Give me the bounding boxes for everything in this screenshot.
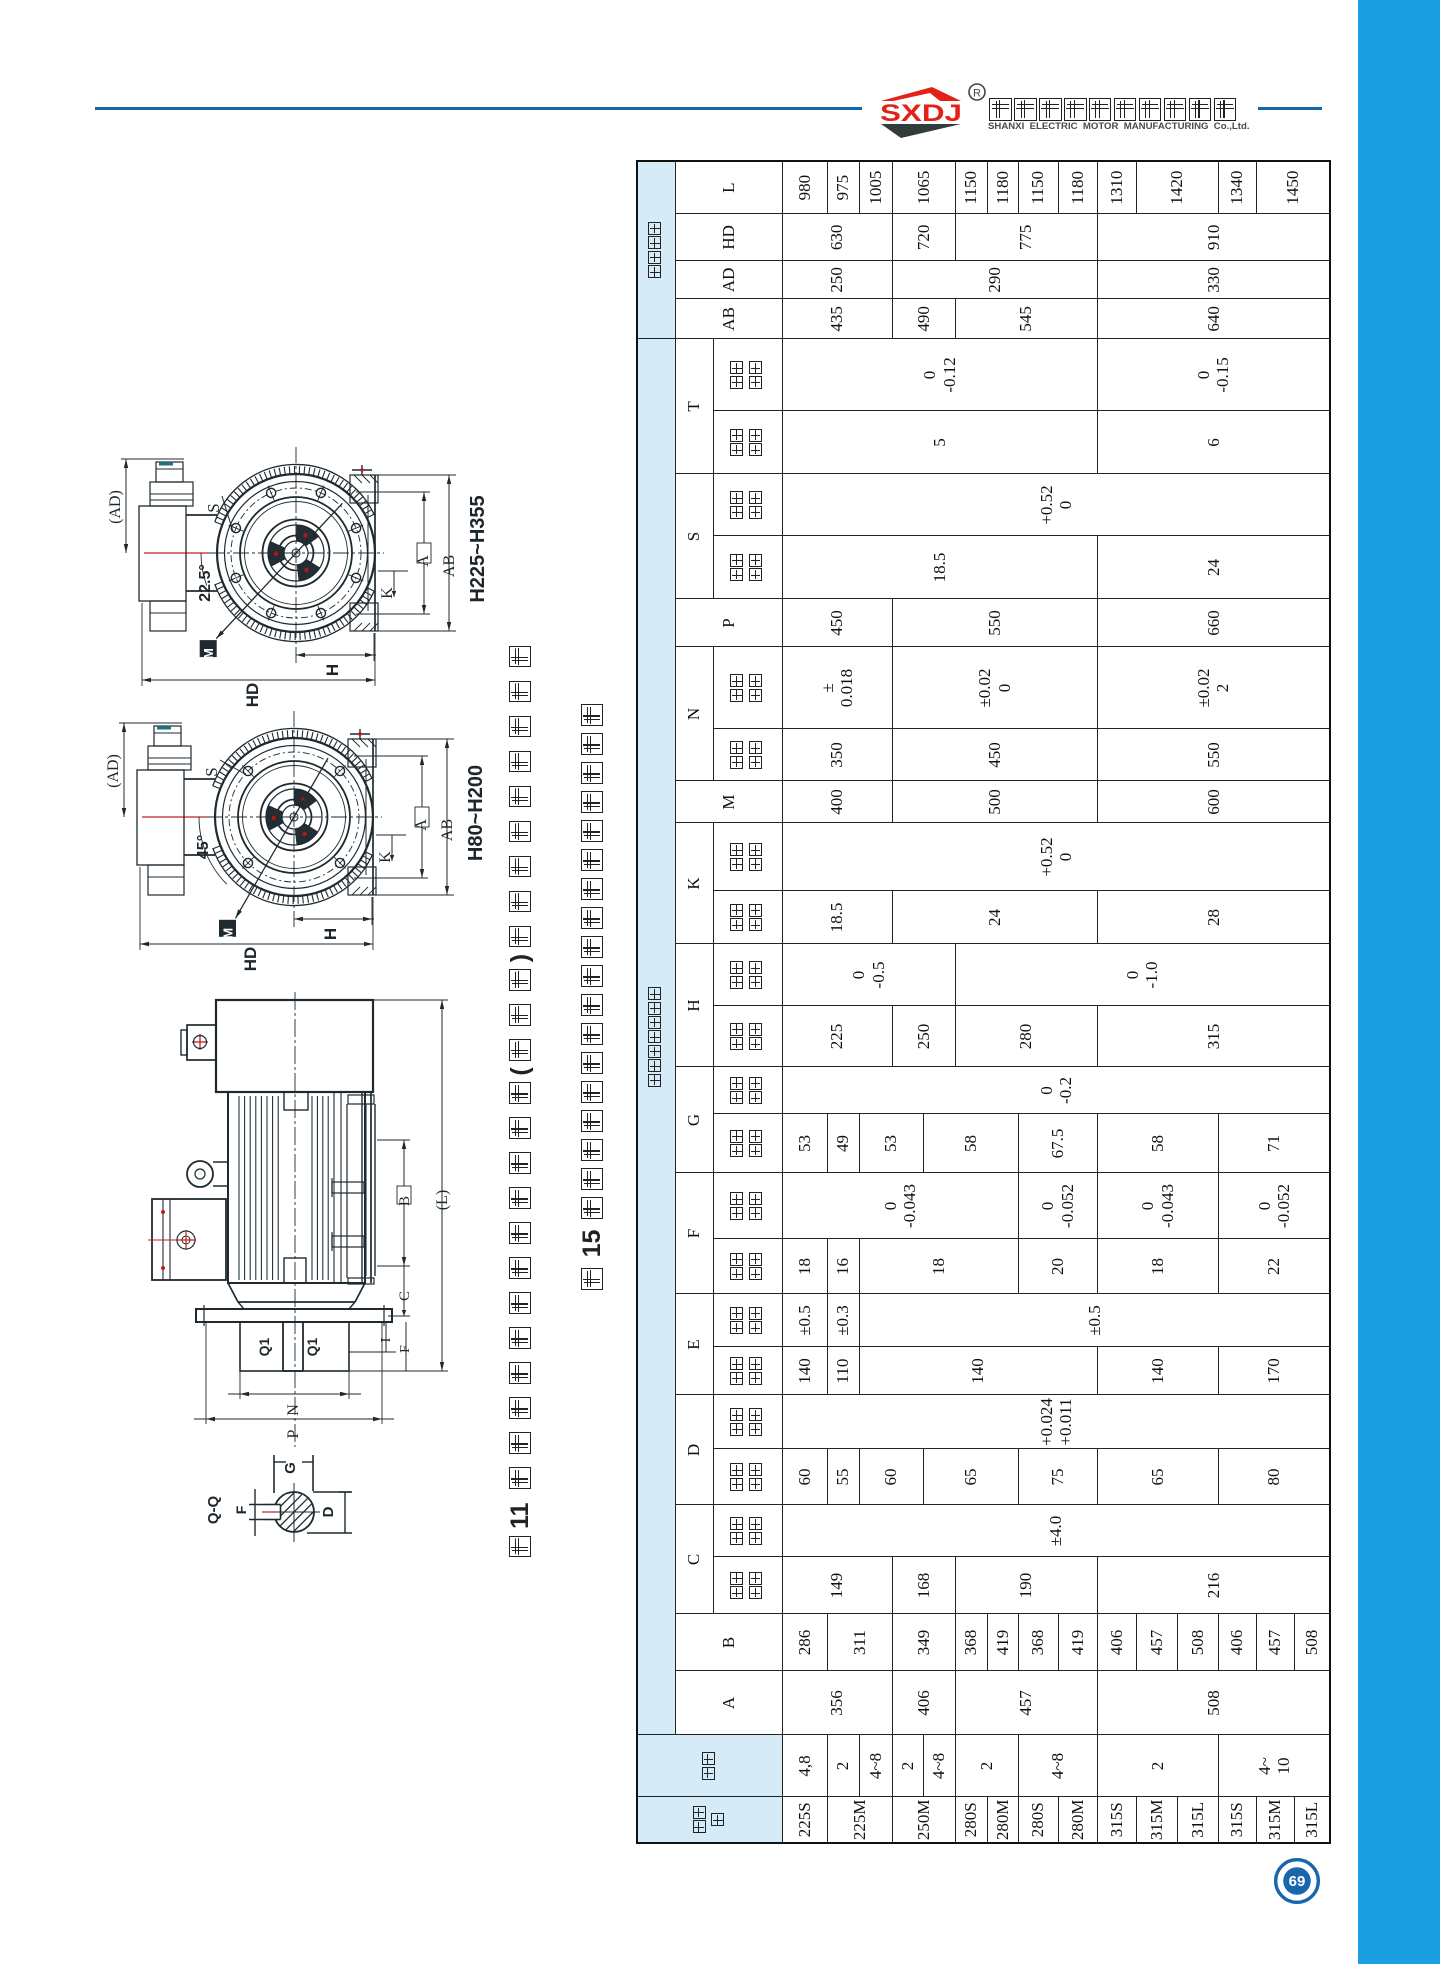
svg-text:G: G bbox=[282, 1462, 299, 1474]
svg-text:M: M bbox=[201, 648, 216, 659]
svg-text:P: P bbox=[285, 1429, 302, 1438]
svg-text:SXDJ: SXDJ bbox=[880, 100, 962, 127]
svg-text:S: S bbox=[204, 503, 223, 512]
svg-text:(L): (L) bbox=[434, 1190, 451, 1210]
svg-text:I: I bbox=[379, 1337, 394, 1342]
svg-text:AB: AB bbox=[441, 555, 458, 577]
svg-text:Q-Q: Q-Q bbox=[205, 1496, 222, 1525]
svg-text:A: A bbox=[413, 819, 430, 831]
svg-text:C: C bbox=[397, 1291, 413, 1301]
svg-text:K: K bbox=[377, 851, 394, 863]
svg-text:H: H bbox=[323, 664, 342, 676]
svg-text:(AD): (AD) bbox=[105, 754, 122, 788]
svg-text:D: D bbox=[320, 1506, 337, 1517]
svg-text:HD: HD bbox=[241, 947, 260, 972]
svg-text:B: B bbox=[397, 1196, 413, 1206]
svg-text:(AD): (AD) bbox=[107, 490, 124, 524]
svg-text:S: S bbox=[202, 767, 221, 776]
svg-text:H225~H355: H225~H355 bbox=[467, 495, 489, 602]
svg-text:R: R bbox=[973, 88, 981, 100]
svg-text:F: F bbox=[233, 1505, 249, 1514]
svg-text:69: 69 bbox=[1289, 1873, 1306, 1890]
svg-text:H: H bbox=[321, 928, 340, 940]
svg-text:F: F bbox=[398, 1345, 413, 1353]
svg-text:Q1: Q1 bbox=[304, 1337, 320, 1356]
svg-text:K: K bbox=[379, 587, 396, 599]
svg-text:AB: AB bbox=[439, 819, 456, 841]
svg-text:N: N bbox=[285, 1404, 302, 1416]
svg-text:HD: HD bbox=[243, 683, 262, 708]
svg-text:H80~H200: H80~H200 bbox=[465, 765, 487, 861]
svg-text:M: M bbox=[221, 928, 236, 939]
svg-text:Q1: Q1 bbox=[256, 1337, 272, 1356]
svg-text:A: A bbox=[415, 555, 432, 567]
